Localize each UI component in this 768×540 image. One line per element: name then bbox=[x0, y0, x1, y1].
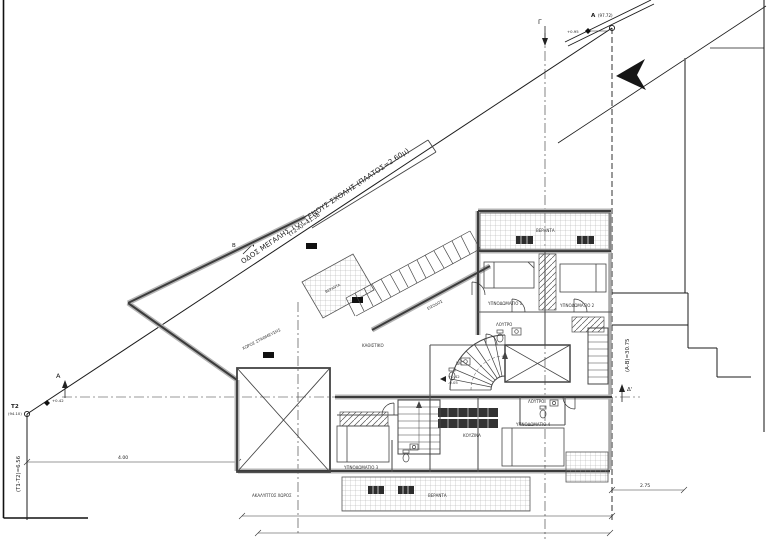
point-a-label: Α bbox=[591, 13, 596, 19]
bed-1 bbox=[484, 262, 534, 288]
room-label-living: ΚΑΘΙΣΤΙΚΟ bbox=[362, 343, 384, 348]
section-marker-right-label: Δ' bbox=[627, 387, 632, 393]
section-marker-left-label: Α bbox=[56, 372, 61, 380]
bed-3 bbox=[337, 426, 389, 462]
bed-2 bbox=[560, 264, 606, 292]
room-label-bathroom: ΛΟΥΤΡΟ bbox=[528, 399, 544, 404]
street-edge-line bbox=[565, 0, 654, 46]
level-court: -0.05 bbox=[448, 380, 458, 385]
building: +0.42 -0.05 ΧΩΡΟΣ ΣΤΑΘΜΕΥΣΗΣ ΚΑΘΙΣΤΙΚΟ Ε… bbox=[128, 211, 612, 511]
closet-bottom-left bbox=[340, 412, 388, 426]
site-boundaries bbox=[24, 0, 766, 521]
shaft-x bbox=[505, 345, 570, 382]
boundary-left-dim-label: (Τ1-Τ2)=6.56 bbox=[16, 455, 22, 492]
stair-straight bbox=[398, 400, 440, 454]
point-a-level: +0.95 bbox=[567, 29, 579, 34]
toilet bbox=[497, 330, 503, 342]
street-name-label: ΟΔΟΣ ΜΕΓΑΛΗΣ ΤΟΥ ΓΕΝΟΥΣ ΣΧΟΛΗΣ (ΠΛΑΤΟΣ=2… bbox=[240, 147, 411, 266]
room-label-veranda-bottom: ΒΕΡΑΝΤΑ bbox=[428, 493, 447, 498]
room-label-court: ΑΚΑΛΥΠΤΟΣ ΧΩΡΟΣ bbox=[252, 493, 292, 498]
kitchen-counter bbox=[438, 408, 498, 428]
neighbor-outline bbox=[612, 293, 751, 377]
point-t2-label: Τ2 bbox=[11, 404, 19, 410]
room-label-parking: ΧΩΡΟΣ ΣΤΑΘΜΕΥΣΗΣ bbox=[241, 327, 282, 351]
balcony-bottom-right bbox=[566, 452, 608, 482]
architectural-drawing: 4.00 2.75 Γ Α Δ' Β ΟΔΟΣ ΜΕΓΑΛΗΣ ΤΟΥ ΓΕΝΟ… bbox=[0, 0, 768, 540]
room-label-bedroom1: ΥΠΝΟΔΩΜΑΤΙΟ 1 bbox=[487, 301, 523, 306]
room-label-bedroom3: ΥΠΝΟΔΩΜΑΤΙΟ 3 bbox=[343, 465, 379, 470]
sink bbox=[512, 328, 521, 335]
dim-side-offset: 4.00 bbox=[118, 455, 128, 461]
survey-point-a: Α (97.72) +0.95 bbox=[567, 13, 613, 34]
sheet-border bbox=[4, 0, 765, 518]
closet-between-bedrooms bbox=[539, 254, 556, 310]
point-t2-elevation: (94.10) bbox=[8, 411, 22, 416]
stair-right bbox=[588, 328, 608, 384]
room-label-veranda-top: ΒΕΡΑΝΤΑ bbox=[536, 228, 555, 233]
section-marker-right: Δ' bbox=[619, 384, 632, 402]
parking-x-room bbox=[237, 368, 330, 472]
room-label-bathroom2: ΛΟΥΤΡΟ bbox=[496, 322, 512, 327]
bed-4 bbox=[502, 428, 564, 466]
point-a-elevation: (97.72) bbox=[598, 13, 613, 18]
floor-plan-canvas: 4.00 2.75 Γ Α Δ' Β ΟΔΟΣ ΜΕΓΑΛΗΣ ΤΟΥ ΓΕΝΟ… bbox=[0, 0, 768, 540]
boundary-right-dim-label: (Α-Β)=30.75 bbox=[625, 339, 631, 373]
room-label-bedroom4: ΥΠΝΟΔΩΜΑΤΙΟ 4 bbox=[515, 422, 551, 427]
dim-rear-offset: 2.75 bbox=[640, 483, 650, 489]
stair-entrance bbox=[346, 231, 480, 316]
level-marks: +0.42 -0.05 bbox=[440, 374, 460, 385]
point-t2-level: +0.42 bbox=[52, 398, 64, 403]
sink bbox=[550, 400, 558, 406]
room-label-wc: WC bbox=[456, 361, 463, 366]
room-label-kitchen: ΚΟΥΖΙΝΑ bbox=[463, 433, 481, 438]
room-label-bedroom2: ΥΠΝΟΔΩΜΑΤΙΟ 2 bbox=[559, 303, 595, 308]
survey-point-t2: Τ2 (94.10) +0.42 bbox=[8, 398, 64, 416]
north-arrow-icon bbox=[616, 59, 646, 90]
section-marker-top-label: Γ bbox=[538, 18, 542, 26]
level-entry: +0.42 bbox=[448, 374, 460, 379]
toilet bbox=[403, 450, 409, 462]
section-marker-top: Γ bbox=[538, 18, 548, 46]
